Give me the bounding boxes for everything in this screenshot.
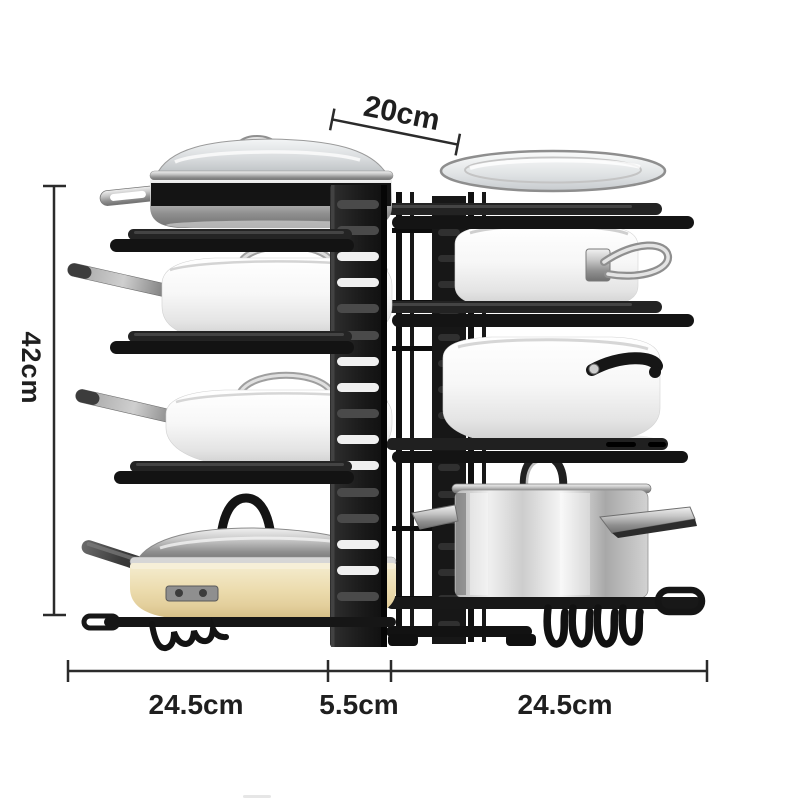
left-shelf-1 — [110, 229, 354, 252]
lid-hook — [597, 608, 615, 644]
right-shelf-2 — [386, 301, 694, 327]
dimension-height: 42cm — [16, 186, 66, 615]
pot-rack-scene: 20cm 42cm 24.5cm 5.5cm 24.5cm — [0, 0, 800, 800]
dimension-label-bottom-right: 24.5cm — [518, 689, 613, 720]
lid-hook — [622, 608, 640, 642]
frame-tube — [396, 192, 402, 642]
right-shelf-1 — [386, 203, 694, 229]
dimension-label-bottom-left: 24.5cm — [149, 689, 244, 720]
left-shelf-3 — [114, 461, 354, 484]
dimension-label-bottom-center: 5.5cm — [319, 689, 398, 720]
dimension-label-top: 20cm — [361, 90, 443, 137]
pan-side-handle — [99, 185, 158, 206]
product-photo-canvas: 20cm 42cm 24.5cm 5.5cm 24.5cm — [0, 0, 800, 800]
left-shelf-2 — [110, 331, 354, 354]
lid-hook — [572, 608, 590, 644]
white-stockpot-small — [455, 226, 668, 312]
dimension-label-height: 42cm — [16, 331, 46, 404]
right-shelf-3 — [386, 438, 688, 463]
lid-hook — [547, 608, 565, 644]
dimension-top-width: 20cm — [330, 84, 465, 155]
rack-foot — [388, 634, 418, 646]
rack-foot — [506, 634, 536, 646]
frame-tube — [410, 192, 414, 642]
handle-mount-bracket — [166, 586, 218, 601]
dimension-bottom-widths: 24.5cm 5.5cm 24.5cm — [68, 660, 707, 720]
lid-hook-row — [152, 624, 226, 648]
lid-arc-handle — [241, 375, 331, 391]
white-stockpot-large — [443, 337, 661, 448]
bottom-edge-artifact — [243, 795, 271, 798]
rack-center-column — [330, 185, 387, 647]
glass-lid-flat — [441, 151, 665, 191]
